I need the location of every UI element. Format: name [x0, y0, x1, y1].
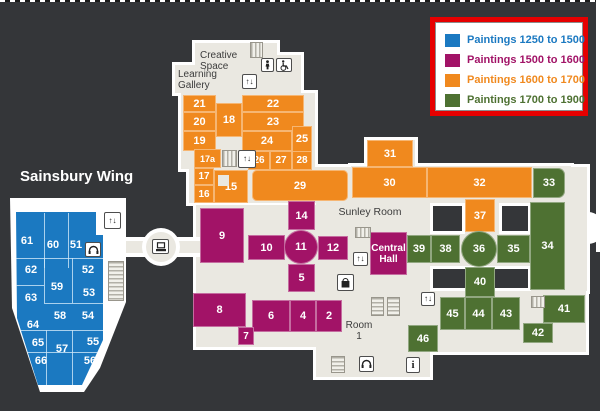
room-28: 28 [292, 151, 312, 170]
room-24: 24 [242, 131, 292, 151]
room-2: 2 [316, 300, 342, 332]
wheelchair-icon [276, 58, 292, 72]
elevator-icon: ↑↓ [242, 74, 257, 89]
room-40: 40 [465, 267, 495, 297]
selection-dashed-border [0, 0, 600, 2]
stairs-icon [355, 227, 371, 238]
room-62: 62 [25, 264, 37, 276]
room-6: 6 [252, 300, 290, 332]
elevator-icon: ↑↓ [353, 252, 368, 266]
info-icon: i [406, 357, 420, 373]
room-8: 8 [193, 293, 246, 327]
room-36: 36 [461, 231, 497, 267]
room-17a: 17a [194, 149, 221, 168]
room-35: 35 [497, 235, 530, 263]
room-33: 33 [533, 168, 565, 198]
sunley-room-label: Sunley Room [320, 207, 420, 218]
room-12: 12 [318, 236, 348, 260]
room-32: 32 [427, 167, 532, 198]
stairs-icon [222, 150, 237, 167]
room-7: 7 [238, 327, 254, 345]
learning-gallery-label: LearningGallery [178, 69, 217, 91]
legend-item: Paintings 1500 to 1600 [445, 50, 582, 70]
central-hall: CentralHall [370, 232, 407, 275]
room-22: 22 [242, 95, 304, 112]
room-42: 42 [523, 323, 553, 343]
room-55: 55 [87, 336, 99, 348]
room-5: 5 [288, 264, 315, 292]
stairs-icon [250, 42, 263, 58]
room-63: 63 [25, 292, 37, 304]
room-9: 9 [200, 208, 244, 263]
legend-swatch-green [445, 94, 460, 107]
room-25: 25 [292, 126, 312, 152]
stairs-icon [108, 261, 124, 301]
shop-bag-icon [337, 274, 354, 291]
sainsbury-wing-title: Sainsbury Wing [20, 168, 133, 185]
room-16: 16 [194, 185, 214, 203]
legend-item: Paintings 1250 to 1500 [445, 30, 582, 50]
room-30: 30 [352, 167, 427, 198]
toilets-icon [261, 58, 274, 72]
legend: Paintings 1250 to 1500 Paintings 1500 to… [430, 17, 588, 116]
gallery-floorplan-map: Sainsbury Wing 61 60 51 62 59 52 63 53 6… [0, 0, 600, 411]
room-57: 57 [56, 343, 68, 355]
room-27: 27 [270, 151, 292, 170]
room-51: 51 [70, 239, 82, 251]
room-21: 21 [183, 95, 216, 112]
room-18: 18 [216, 103, 242, 137]
room-39: 39 [407, 235, 431, 263]
room-31: 31 [367, 140, 413, 167]
room-19: 19 [183, 131, 216, 151]
room-58: 58 [54, 310, 66, 322]
legend-swatch-orange [445, 74, 460, 87]
multimedia-icon [152, 239, 169, 254]
legend-swatch-magenta [445, 54, 460, 67]
room-1-label: Room1 [343, 320, 375, 342]
room-45: 45 [440, 297, 465, 330]
room-61: 61 [21, 235, 33, 247]
room-60: 60 [47, 239, 59, 251]
room-10: 10 [248, 235, 285, 260]
room-41: 41 [543, 295, 585, 323]
room-53: 53 [83, 287, 95, 299]
audio-guide-icon [85, 242, 101, 257]
room-65: 65 [32, 337, 44, 349]
legend-item: Paintings 1700 to 1900 [445, 90, 582, 110]
room-29: 29 [252, 170, 348, 201]
room-37: 37 [465, 199, 495, 232]
stairs-icon [531, 296, 545, 308]
room-15-lightwell [218, 175, 229, 186]
elevator-icon: ↑↓ [104, 212, 121, 229]
stairs-icon [331, 356, 345, 373]
elevator-icon: ↑↓ [238, 150, 256, 168]
legend-swatch-blue [445, 34, 460, 47]
room-38: 38 [431, 235, 460, 263]
room-64: 64 [27, 319, 39, 331]
room-46: 46 [408, 325, 438, 352]
room-17: 17 [194, 168, 214, 185]
room-34: 34 [530, 202, 565, 290]
legend-box: Paintings 1250 to 1500 Paintings 1500 to… [435, 22, 583, 111]
stairs-icon [371, 297, 384, 316]
room-59: 59 [51, 281, 63, 293]
room-14: 14 [288, 201, 315, 230]
stairs-icon [387, 297, 400, 316]
room-20: 20 [183, 112, 216, 131]
room-44: 44 [465, 297, 492, 330]
room-52: 52 [82, 264, 94, 276]
audio-guide-icon [359, 356, 374, 372]
elevator-icon: ↑↓ [421, 292, 435, 306]
room-11: 11 [284, 230, 318, 264]
room-4: 4 [290, 300, 316, 332]
room-54: 54 [82, 310, 94, 322]
room-43: 43 [492, 297, 520, 330]
legend-item: Paintings 1600 to 1700 [445, 70, 582, 90]
room-66: 66 [35, 355, 47, 367]
